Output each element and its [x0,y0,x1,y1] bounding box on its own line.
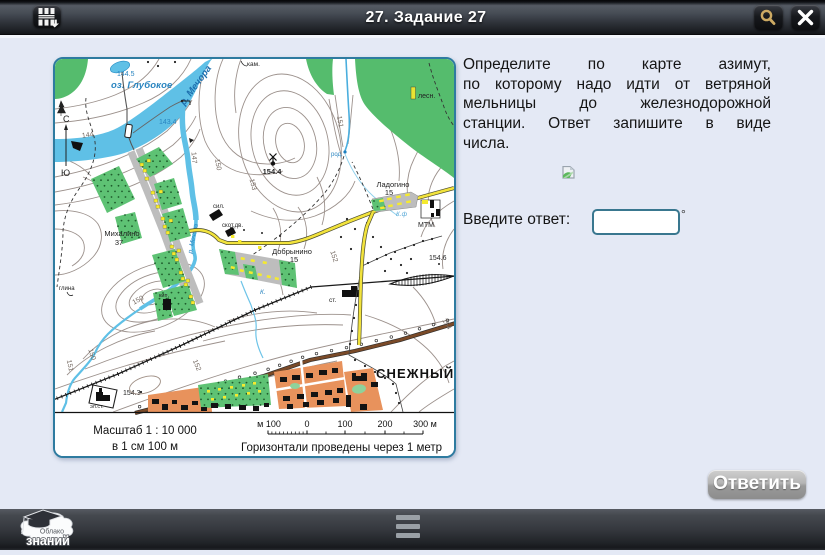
svg-text:147: 147 [189,152,197,164]
svg-text:15: 15 [290,255,298,264]
svg-text:лесн.: лесн. [418,93,435,100]
svg-text:К.: К. [260,289,266,296]
svg-text:скот.дв.: скот.дв. [222,223,243,229]
svg-text:200: 200 [377,419,392,429]
svg-text:СНЕЖНЫЙ: СНЕЖНЫЙ [376,366,454,381]
svg-text:глина: глина [59,286,75,292]
svg-text:в 1 см 100 м: в 1 см 100 м [112,441,178,453]
svg-text:0: 0 [304,419,309,429]
svg-text:37: 37 [115,238,123,247]
svg-text:род.: род. [331,152,343,158]
svg-text:Горизонтали проведены через 1: Горизонтали проведены через 1 метр [241,442,442,454]
svg-text:м 100: м 100 [257,419,281,429]
svg-text:К.ф: К.ф [396,211,408,218]
svg-text:Масштаб 1 : 10 000: Масштаб 1 : 10 000 [93,425,197,437]
svg-text:15: 15 [385,188,393,197]
svg-text:кип.: кип. [159,293,169,299]
svg-text:оз. Глубокое: оз. Глубокое [111,80,173,91]
svg-text:кам.: кам. [247,61,260,68]
svg-text:эл.ст.: эл.ст. [90,404,104,410]
svg-text:154.4: 154.4 [263,167,283,176]
svg-text:МТМ: МТМ [418,222,434,229]
svg-text:Ю: Ю [61,168,70,178]
svg-text:100: 100 [337,419,352,429]
svg-text:154.3: 154.3 [123,390,141,397]
svg-text:300 м: 300 м [413,419,437,429]
svg-text:144.5: 144.5 [117,71,135,78]
svg-text:143.4: 143.4 [159,119,177,126]
svg-text:ст.: ст. [329,297,337,304]
svg-text:154.6: 154.6 [429,255,447,262]
svg-text:Михалино: Михалино [104,229,139,238]
svg-text:знаний: знаний [26,534,70,548]
svg-text:С: С [63,114,70,124]
svg-text:сил.: сил. [213,204,225,210]
